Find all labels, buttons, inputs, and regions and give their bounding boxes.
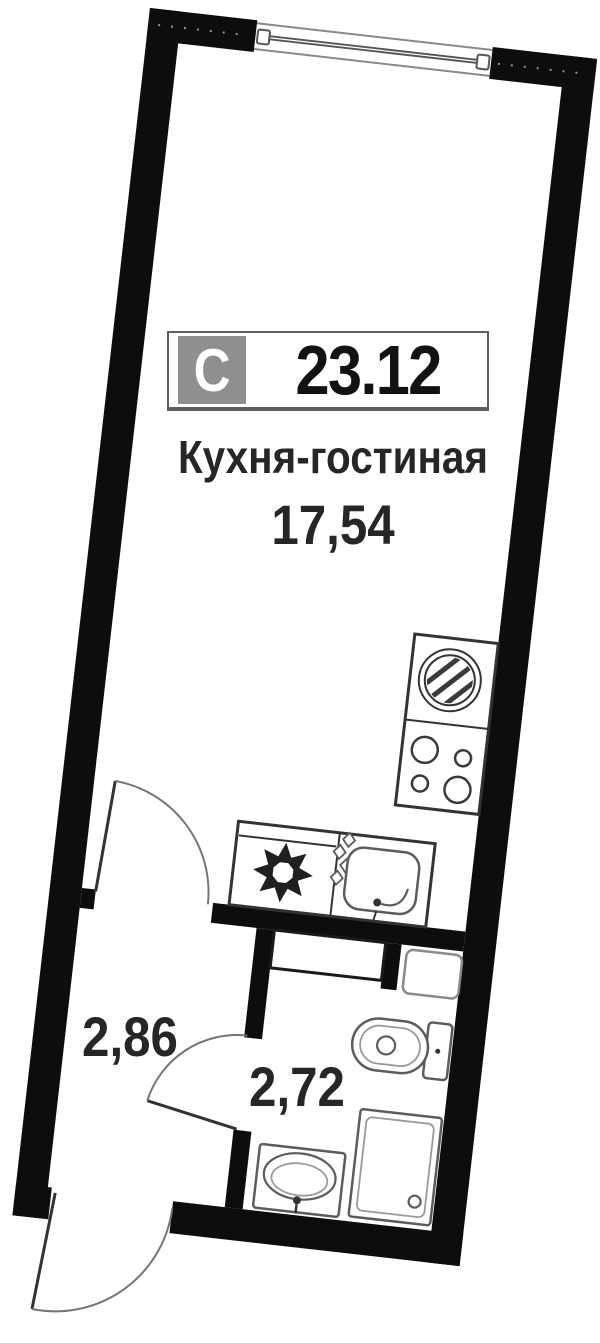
hallway-area: 2,86: [60, 1004, 201, 1069]
appliance-block: [395, 634, 498, 814]
unit-type-badge: С: [178, 336, 246, 404]
living-room-area: 17,54: [161, 492, 504, 557]
total-area-value: 23.12: [266, 336, 470, 404]
floor-plan-drawing: [0, 0, 600, 1343]
entrance-door-icon: [32, 1192, 173, 1324]
living-room-door-icon: [96, 780, 221, 904]
window-icon: [254, 23, 492, 76]
living-room-name: Кухня-гостиная: [161, 430, 504, 484]
shower-tray-icon: [348, 1109, 442, 1226]
bathroom-area: 2,72: [227, 1054, 368, 1119]
floor-plan-page: С 23.12 Кухня-гостиная 17,54 2,86 2,72: [0, 0, 600, 1343]
vent-box: [402, 949, 463, 999]
unit-badge: С 23.12: [167, 331, 489, 411]
washbasin-icon: [253, 1144, 346, 1218]
